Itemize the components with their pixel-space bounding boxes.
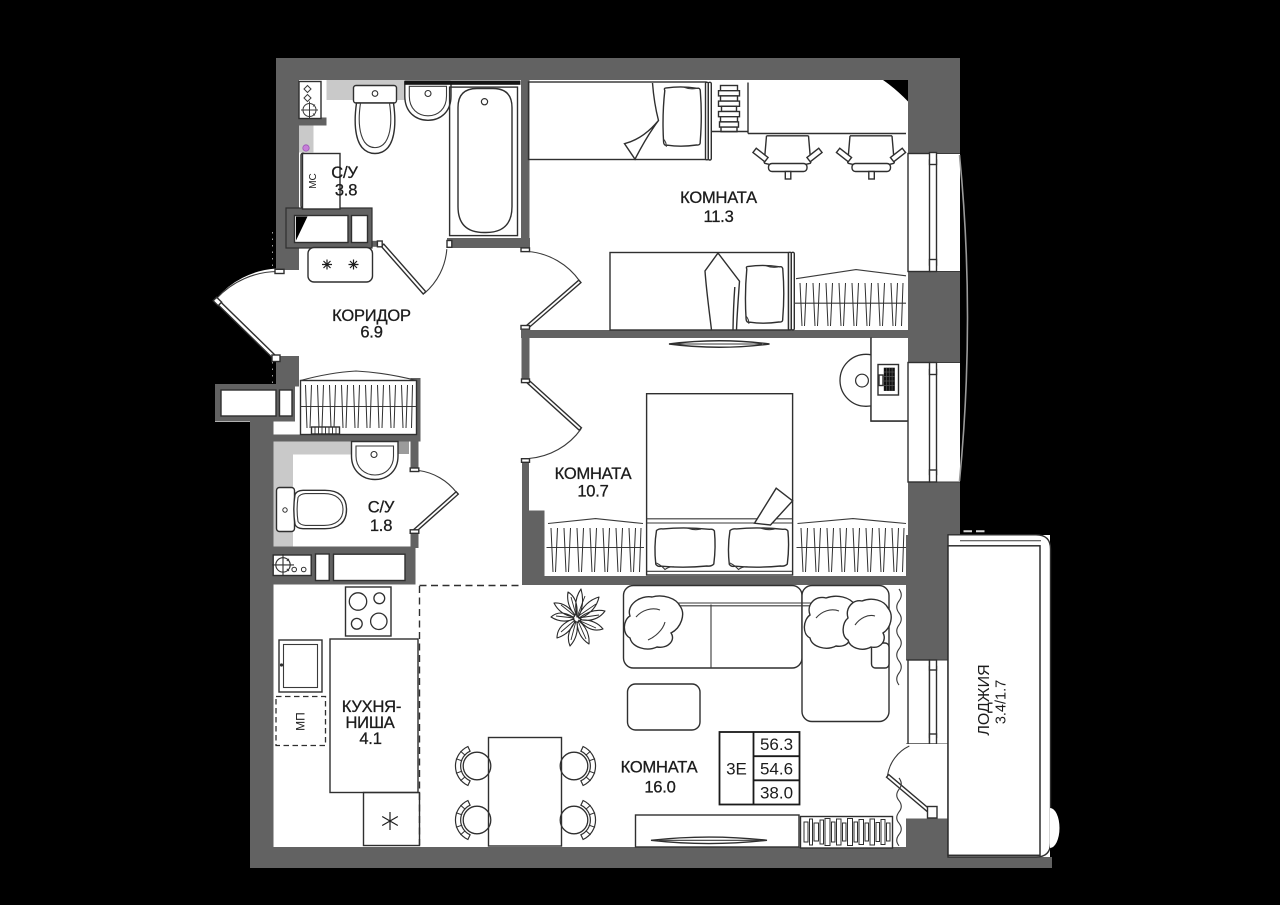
svg-text:11.3: 11.3 <box>703 208 733 226</box>
svg-text:56.3: 56.3 <box>760 735 793 754</box>
svg-text:КОМНАТА: КОМНАТА <box>555 465 632 483</box>
svg-text:54.6: 54.6 <box>760 759 793 778</box>
svg-text:3.4/1.7: 3.4/1.7 <box>994 680 1010 724</box>
svg-text:4.1: 4.1 <box>359 730 381 748</box>
svg-text:3Е: 3Е <box>726 759 747 778</box>
svg-text:10.7: 10.7 <box>577 483 608 501</box>
svg-text:КОРИДОР: КОРИДОР <box>332 307 411 325</box>
svg-text:38.0: 38.0 <box>760 783 793 802</box>
svg-text:С/У: С/У <box>331 164 358 182</box>
svg-text:3.8: 3.8 <box>335 182 357 200</box>
svg-text:16.0: 16.0 <box>644 779 675 797</box>
svg-text:ЛОДЖИЯ: ЛОДЖИЯ <box>976 664 993 735</box>
svg-text:1.8: 1.8 <box>370 517 392 535</box>
svg-text:МП: МП <box>294 712 308 731</box>
svg-text:С/У: С/У <box>368 499 395 517</box>
svg-text:КОМНАТА: КОМНАТА <box>680 189 757 207</box>
svg-text:6.9: 6.9 <box>360 324 382 342</box>
svg-text:МС: МС <box>308 173 319 189</box>
svg-text:КОМНАТА: КОМНАТА <box>621 759 698 777</box>
